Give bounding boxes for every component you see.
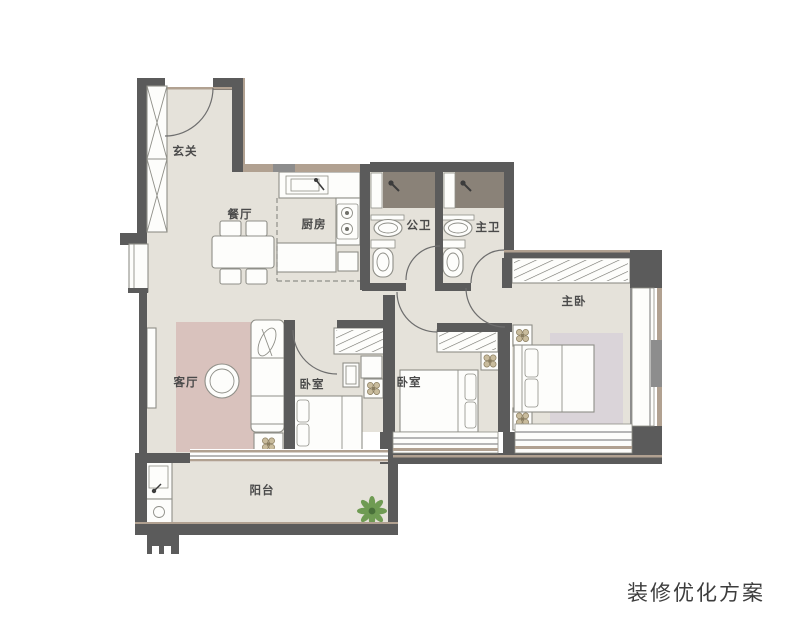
sofa xyxy=(251,320,284,432)
guest-bath-shower xyxy=(371,172,435,208)
balcony-sliding-door xyxy=(190,449,388,462)
room-label-kitchen: 厨房 xyxy=(302,216,327,232)
bedroom-a-bed xyxy=(294,396,362,450)
bedroom-b-wardrobe xyxy=(437,330,498,352)
entry-shoe-cabinet xyxy=(147,86,167,232)
window-under-master xyxy=(515,424,632,453)
potted-plant-icon xyxy=(357,496,387,526)
master-bed xyxy=(514,345,594,412)
coffee-table xyxy=(205,364,239,398)
room-label-entry: 玄关 xyxy=(173,143,198,159)
washing-machine xyxy=(145,499,172,526)
master-wardrobe xyxy=(512,258,630,283)
room-label-balcony: 阳台 xyxy=(250,482,275,498)
room-label-master-bath: 主卫 xyxy=(476,219,501,235)
floor-plan-canvas: 玄关 餐厅 厨房 公卫 主卫 主卧 客厅 卧室 卧室 阳台 装修优化方案 xyxy=(0,0,800,626)
bedroom-a-nightstand xyxy=(364,379,383,398)
window-under-bedroom-b xyxy=(393,432,498,453)
room-label-guest-bath: 公卫 xyxy=(407,217,432,233)
room-label-bedroom-a: 卧室 xyxy=(300,376,325,392)
plan-caption: 装修优化方案 xyxy=(627,577,765,607)
bedroom-b-nightstand xyxy=(481,352,499,370)
master-nightstand-top xyxy=(513,325,532,346)
stove xyxy=(337,204,358,239)
kitchen-sink xyxy=(286,176,328,194)
room-label-bedroom-b: 卧室 xyxy=(397,374,422,390)
room-label-dining: 餐厅 xyxy=(228,206,253,222)
room-label-living: 客厅 xyxy=(174,374,199,390)
bay-window-right xyxy=(630,288,662,426)
master-bath-toilet xyxy=(441,240,465,277)
laundry-sink xyxy=(145,462,172,499)
bedroom-a-wardrobe xyxy=(334,328,388,354)
room-label-master-bedroom: 主卧 xyxy=(562,293,587,309)
guest-bath-toilet xyxy=(371,240,395,277)
tv-console xyxy=(147,328,156,408)
master-bath-shower xyxy=(444,172,504,208)
floor-plan-drawing xyxy=(0,0,800,626)
